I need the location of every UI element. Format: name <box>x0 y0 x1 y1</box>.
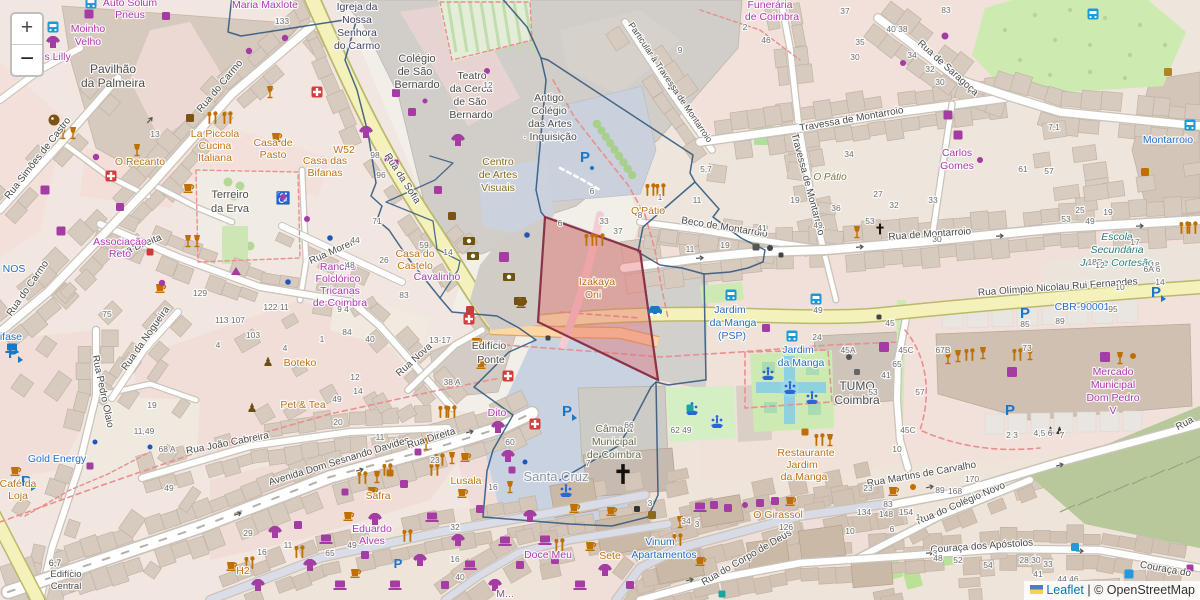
svg-text:8: 8 <box>638 210 643 220</box>
svg-text:H2: H2 <box>236 565 250 577</box>
svg-text:9: 9 <box>678 45 683 55</box>
svg-text:95: 95 <box>1108 304 1118 314</box>
svg-text:30: 30 <box>850 52 860 62</box>
svg-text:Casa das: Casa das <box>303 155 347 167</box>
svg-text:Terreiro: Terreiro <box>211 189 248 201</box>
svg-text:34: 34 <box>844 149 854 159</box>
svg-text:Q'Pátio: Q'Pátio <box>631 205 665 217</box>
svg-text:84: 84 <box>342 327 352 337</box>
svg-text:Folclórico: Folclórico <box>316 273 361 285</box>
svg-text:da Palmeira: da Palmeira <box>81 76 145 90</box>
svg-text:Auto Solum: Auto Solum <box>103 0 158 9</box>
svg-text:85: 85 <box>1020 319 1030 329</box>
svg-text:37: 37 <box>613 226 623 236</box>
svg-text:♟: ♟ <box>263 355 274 369</box>
svg-text:53: 53 <box>1061 214 1071 224</box>
svg-text:73: 73 <box>1022 343 1032 353</box>
svg-text:57: 57 <box>915 387 925 397</box>
svg-text:Funerária: Funerária <box>748 0 793 11</box>
svg-text:Pet & Tea: Pet & Tea <box>280 399 325 411</box>
svg-text:34: 34 <box>907 50 917 60</box>
svg-text:83: 83 <box>883 499 893 509</box>
svg-text:11: 11 <box>686 244 695 254</box>
svg-text:10: 10 <box>845 526 855 536</box>
svg-text:7: 7 <box>586 458 591 468</box>
svg-text:Jardim: Jardim <box>714 304 746 316</box>
svg-text:Igreja da: Igreja da <box>337 1 378 13</box>
svg-text:6: 6 <box>590 186 595 196</box>
svg-text:Safra: Safra <box>365 490 390 502</box>
svg-text:17: 17 <box>1130 237 1140 247</box>
svg-text:4: 4 <box>216 340 221 350</box>
svg-text:62 49: 62 49 <box>670 425 692 435</box>
svg-text:28,30: 28,30 <box>1019 555 1041 565</box>
svg-text:126: 126 <box>779 522 793 532</box>
svg-text:16: 16 <box>450 554 460 564</box>
svg-text:35: 35 <box>855 37 865 47</box>
svg-text:Carlos: Carlos <box>942 147 972 159</box>
svg-text:2 3: 2 3 <box>1006 430 1018 440</box>
svg-text:13: 13 <box>150 129 160 139</box>
svg-text:Pneus: Pneus <box>115 9 145 21</box>
svg-text:44: 44 <box>350 235 360 245</box>
svg-text:75: 75 <box>102 309 112 319</box>
svg-text:Moinho: Moinho <box>71 23 106 35</box>
svg-text:19: 19 <box>147 400 157 410</box>
svg-text:ss Lilly: ss Lilly <box>39 51 71 63</box>
svg-text:12: 12 <box>350 372 360 382</box>
svg-text:49: 49 <box>332 394 342 404</box>
svg-text:11: 11 <box>284 540 293 550</box>
svg-text:7: 7 <box>1060 430 1065 440</box>
svg-text:1: 1 <box>658 192 663 202</box>
svg-text:P: P <box>580 149 590 166</box>
svg-text:25: 25 <box>1075 205 1085 215</box>
svg-text:48: 48 <box>933 553 943 563</box>
svg-text:3: 3 <box>695 519 700 529</box>
svg-text:Café da: Café da <box>0 478 37 490</box>
svg-text:40 38: 40 38 <box>886 24 908 34</box>
svg-text:das Artes: das Artes <box>528 118 572 130</box>
svg-text:16: 16 <box>257 547 267 557</box>
svg-text:89: 89 <box>935 485 945 495</box>
svg-text:41: 41 <box>1033 569 1043 579</box>
svg-text:14: 14 <box>353 386 363 396</box>
svg-text:de Artes: de Artes <box>479 169 518 181</box>
svg-text:7,1: 7,1 <box>1048 122 1060 132</box>
svg-text:Central: Central <box>51 581 82 592</box>
svg-text:53: 53 <box>865 216 875 226</box>
svg-text:29: 29 <box>243 528 253 538</box>
svg-text:de Coimbra: de Coimbra <box>587 449 641 461</box>
svg-text:Municipal: Municipal <box>1091 379 1135 391</box>
svg-text:49: 49 <box>347 540 357 550</box>
svg-text:148: 148 <box>879 509 893 519</box>
svg-text:Centro: Centro <box>482 156 514 168</box>
svg-text:6: 6 <box>890 524 895 534</box>
svg-text:5,7: 5,7 <box>700 164 712 174</box>
svg-text:19: 19 <box>1103 207 1113 217</box>
svg-text:M...: M... <box>496 588 514 600</box>
svg-text:Alves: Alves <box>359 535 385 547</box>
svg-text:nifase: nifase <box>0 331 22 343</box>
svg-text:52: 52 <box>953 555 963 565</box>
svg-text:Vinum: Vinum <box>645 536 675 548</box>
svg-text:La Piccola: La Piccola <box>191 128 240 140</box>
svg-text:133: 133 <box>275 16 289 26</box>
svg-text:168: 168 <box>948 486 962 496</box>
svg-text:49: 49 <box>813 220 823 230</box>
svg-text:P: P <box>562 403 572 420</box>
svg-text:45: 45 <box>885 318 895 328</box>
svg-text:Restaurante: Restaurante <box>777 447 834 459</box>
svg-text:13-17: 13-17 <box>429 335 451 345</box>
svg-text:da Erva: da Erva <box>211 203 250 215</box>
svg-text:Maria Maxlote: Maria Maxlote <box>232 0 298 11</box>
svg-text:Dom Pedro: Dom Pedro <box>1086 392 1139 404</box>
svg-text:34: 34 <box>681 516 691 526</box>
svg-text:O Girassol: O Girassol <box>753 509 803 521</box>
svg-text:6A 6: 6A 6 <box>1143 264 1160 274</box>
svg-text:49: 49 <box>813 305 823 315</box>
svg-text:89: 89 <box>1055 316 1065 326</box>
svg-text:19: 19 <box>790 195 800 205</box>
svg-text:49: 49 <box>164 483 174 493</box>
svg-text:Edifício: Edifício <box>50 569 81 580</box>
svg-text:45C: 45C <box>900 425 916 435</box>
svg-text:61: 61 <box>1018 164 1028 174</box>
svg-text:Sete: Sete <box>599 550 621 562</box>
svg-text:48: 48 <box>345 260 355 270</box>
svg-text:11: 11 <box>376 432 385 442</box>
svg-text:Apartamentos: Apartamentos <box>631 549 696 561</box>
svg-text:O Recanto: O Recanto <box>115 156 165 168</box>
svg-text:71: 71 <box>372 216 382 226</box>
svg-text:Jardim: Jardim <box>782 344 814 356</box>
svg-text:23: 23 <box>863 483 873 493</box>
svg-text:4: 4 <box>283 343 288 353</box>
svg-text:41: 41 <box>757 223 767 233</box>
svg-text:Ponte: Ponte <box>477 354 505 366</box>
svg-text:41: 41 <box>881 370 891 380</box>
svg-text:23: 23 <box>430 455 440 465</box>
svg-text:32: 32 <box>925 64 935 74</box>
svg-text:Izakaya: Izakaya <box>579 276 615 288</box>
svg-text:1: 1 <box>320 334 325 344</box>
svg-text:32: 32 <box>889 200 899 210</box>
svg-text:170: 170 <box>965 474 979 484</box>
svg-text:32: 32 <box>450 522 460 532</box>
svg-text:14: 14 <box>443 247 453 257</box>
svg-text:de São: de São <box>453 96 486 108</box>
svg-text:P: P <box>1005 402 1015 419</box>
svg-text:da Manga: da Manga <box>710 317 757 329</box>
svg-text:Escola: Escola <box>1101 231 1133 243</box>
svg-text:Loja: Loja <box>8 490 28 502</box>
svg-text:O Pátio: O Pátio <box>813 172 847 183</box>
svg-text:20: 20 <box>333 417 343 427</box>
svg-text:38 A: 38 A <box>443 377 460 387</box>
svg-text:10: 10 <box>1115 282 1125 292</box>
svg-text:Pasto: Pasto <box>260 149 287 161</box>
svg-text:Tricanas: Tricanas <box>320 285 360 297</box>
svg-text:Municipal: Municipal <box>592 436 636 448</box>
svg-text:Pavilhão: Pavilhão <box>90 62 136 76</box>
svg-text:98: 98 <box>370 150 380 160</box>
svg-text:Gold Energy: Gold Energy <box>28 453 87 465</box>
svg-text:CBR-90001: CBR-90001 <box>1055 301 1110 313</box>
svg-text:33: 33 <box>1043 559 1053 569</box>
svg-text:Reto: Reto <box>109 248 131 260</box>
svg-text:Nossa: Nossa <box>342 14 372 26</box>
svg-text:134: 134 <box>857 507 871 517</box>
svg-text:11: 11 <box>693 195 702 205</box>
svg-text:129: 129 <box>193 288 207 298</box>
svg-text:45C: 45C <box>898 345 914 355</box>
svg-text:Visuais: Visuais <box>481 182 515 194</box>
svg-text:103: 103 <box>246 330 260 340</box>
svg-text:Dito: Dito <box>488 407 507 419</box>
svg-text:(PSP): (PSP) <box>718 330 746 342</box>
svg-text:68 A: 68 A <box>158 444 175 454</box>
svg-text:24: 24 <box>812 332 822 342</box>
svg-text:Colégio: Colégio <box>398 53 435 65</box>
svg-text:27: 27 <box>873 189 883 199</box>
svg-text:Antigo: Antigo <box>534 92 564 104</box>
svg-text:Cavalinho: Cavalinho <box>414 271 461 283</box>
svg-text:14: 14 <box>1155 277 1165 287</box>
svg-text:65: 65 <box>325 548 335 558</box>
svg-text:67B: 67B <box>935 345 950 355</box>
svg-text:6,7: 6,7 <box>49 558 62 568</box>
svg-text:59: 59 <box>419 240 429 250</box>
svg-text:P: P <box>394 556 403 571</box>
svg-text:12: 12 <box>1095 260 1105 270</box>
svg-text:83: 83 <box>941 5 951 15</box>
svg-text:33: 33 <box>599 216 609 226</box>
svg-text:Colégio: Colégio <box>531 105 567 117</box>
svg-text:· Inquisição: · Inquisição <box>523 131 577 143</box>
svg-text:Castelo: Castelo <box>397 260 433 272</box>
svg-text:Italiana: Italiana <box>198 152 232 164</box>
svg-text:10: 10 <box>892 444 902 454</box>
svg-text:1: 1 <box>916 512 921 522</box>
svg-text:V: V <box>1109 405 1116 417</box>
svg-text:de São: de São <box>398 66 433 78</box>
svg-text:Montarroio: Montarroio <box>1143 134 1193 146</box>
svg-text:♟: ♟ <box>247 401 258 415</box>
svg-text:W52: W52 <box>333 144 355 156</box>
svg-text:Santa Cruz: Santa Cruz <box>523 469 588 484</box>
svg-text:3: 3 <box>648 498 653 508</box>
svg-text:Jardim: Jardim <box>786 459 818 471</box>
svg-text:2: 2 <box>743 22 748 32</box>
svg-text:Cucina: Cucina <box>199 140 232 152</box>
svg-text:33: 33 <box>928 195 938 205</box>
svg-text:54: 54 <box>983 560 993 570</box>
svg-text:Velho: Velho <box>75 36 101 48</box>
svg-text:Casa de: Casa de <box>253 137 292 149</box>
svg-text:Edifício: Edifício <box>472 340 507 352</box>
svg-text:Casa do: Casa do <box>395 248 434 260</box>
svg-text:19: 19 <box>720 240 730 250</box>
svg-text:Bernardo: Bernardo <box>449 109 492 121</box>
svg-text:65: 65 <box>892 359 902 369</box>
svg-text:122 11: 122 11 <box>263 302 289 312</box>
svg-text:Mercado: Mercado <box>1093 366 1134 378</box>
svg-text:Bifanas: Bifanas <box>307 167 342 179</box>
svg-text:Associação: Associação <box>93 236 147 248</box>
svg-text:154: 154 <box>899 507 913 517</box>
svg-text:Lusala: Lusala <box>451 475 482 487</box>
svg-text:40: 40 <box>455 572 465 582</box>
svg-text:NOS: NOS <box>3 263 26 275</box>
svg-text:113 107: 113 107 <box>215 315 245 325</box>
svg-text:Oni: Oni <box>585 289 601 301</box>
svg-text:30: 30 <box>932 234 942 244</box>
svg-text:Bernardo: Bernardo <box>394 79 439 91</box>
svg-text:11,49: 11,49 <box>134 426 155 436</box>
svg-text:Gomes: Gomes <box>940 160 974 172</box>
svg-text:Doce Meu: Doce Meu <box>524 549 572 561</box>
svg-text:16: 16 <box>488 482 498 492</box>
svg-text:66: 66 <box>624 420 634 430</box>
svg-text:da Manga: da Manga <box>778 357 825 369</box>
svg-text:26: 26 <box>379 255 389 265</box>
svg-text:4,5 6: 4,5 6 <box>1034 428 1053 438</box>
svg-text:60: 60 <box>505 437 515 447</box>
svg-text:46: 46 <box>761 35 771 45</box>
svg-text:6: 6 <box>558 218 563 228</box>
svg-text:36: 36 <box>831 203 841 213</box>
svg-text:Boteko: Boteko <box>284 357 317 369</box>
svg-text:45A: 45A <box>840 345 855 355</box>
svg-text:53: 53 <box>868 387 878 397</box>
svg-text:37: 37 <box>840 6 850 16</box>
svg-text:9 4: 9 4 <box>337 304 349 314</box>
svg-text:Senhora: Senhora <box>337 27 377 39</box>
svg-text:Eduardo: Eduardo <box>352 523 392 535</box>
svg-text:de Coimbra: de Coimbra <box>745 11 799 23</box>
svg-text:83: 83 <box>399 290 409 300</box>
svg-text:57: 57 <box>1044 166 1054 176</box>
svg-text:49: 49 <box>1085 216 1095 226</box>
svg-text:da Manga: da Manga <box>781 471 828 483</box>
svg-text:96: 96 <box>376 170 386 180</box>
svg-text:do Carmo: do Carmo <box>334 40 380 52</box>
svg-text:12: 12 <box>483 80 493 90</box>
svg-text:30: 30 <box>935 77 945 87</box>
svg-text:40: 40 <box>365 334 375 344</box>
